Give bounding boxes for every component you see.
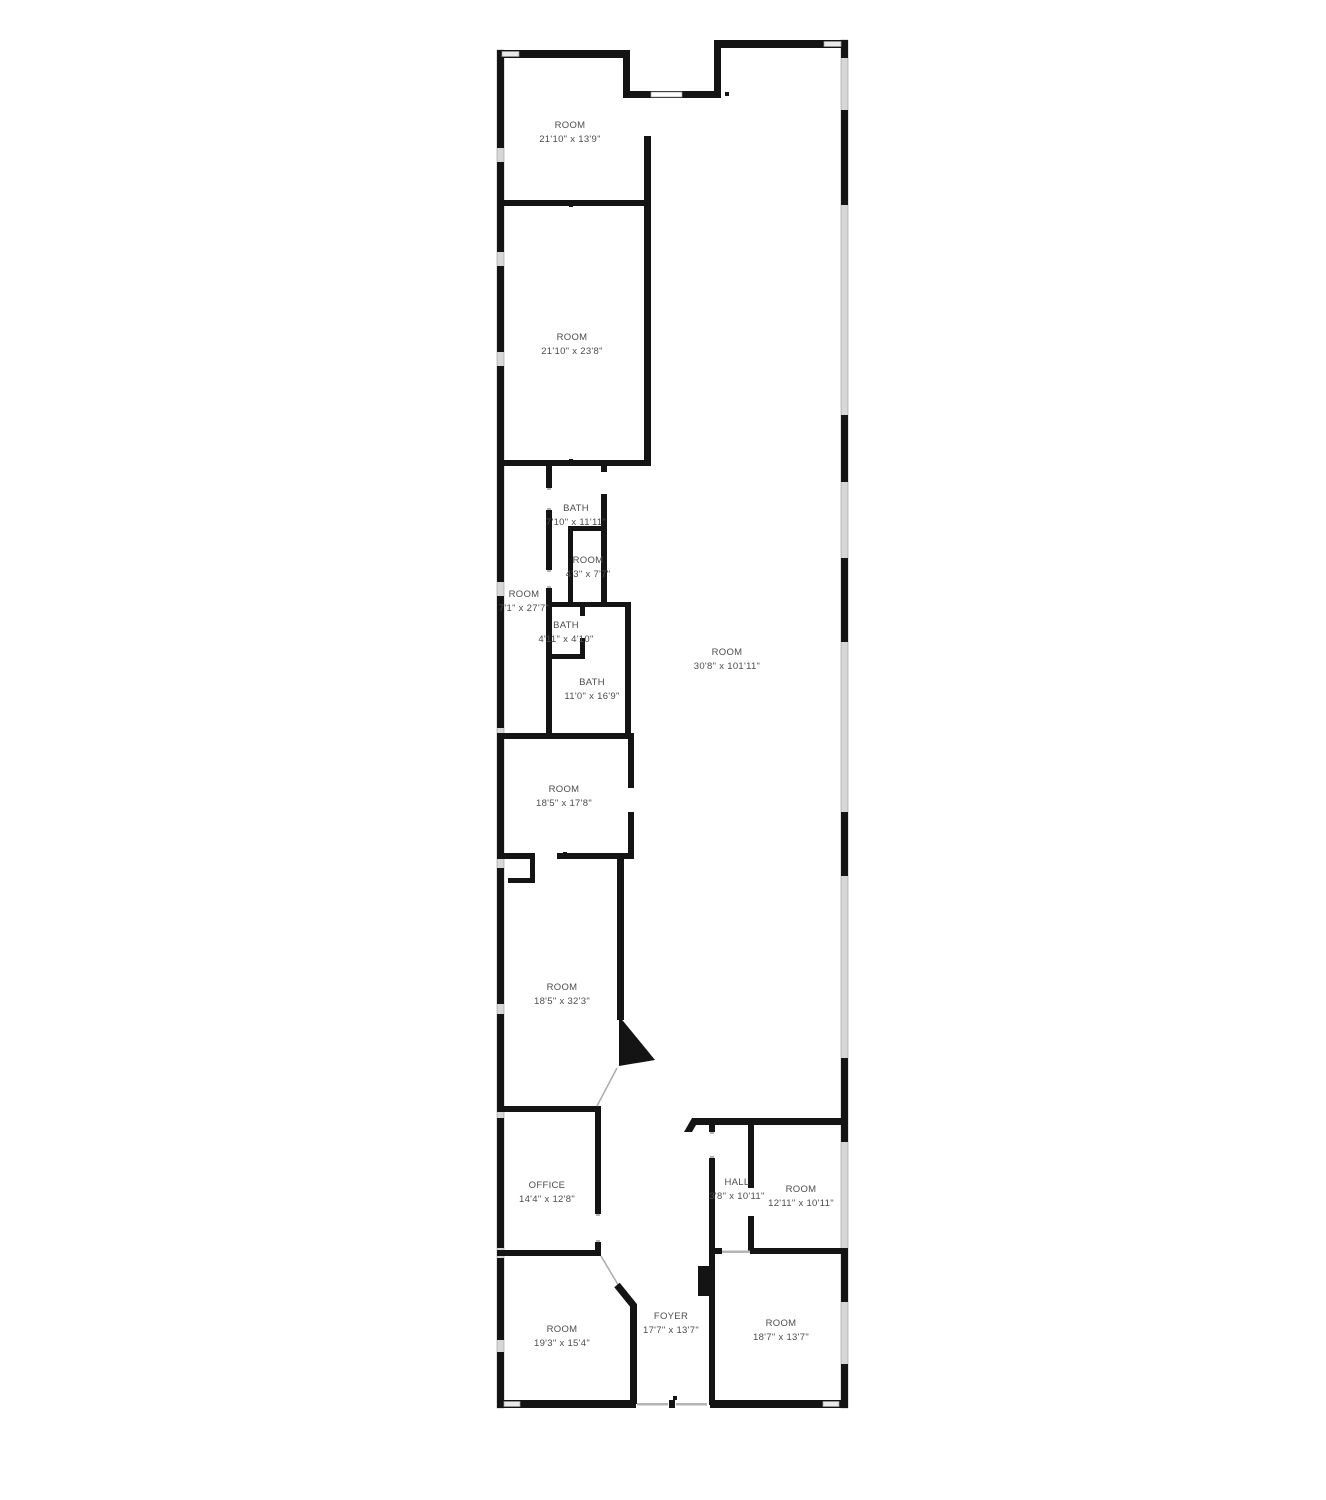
room-dims: 30'8" x 101'11": [694, 660, 760, 674]
room-name: BATH: [563, 503, 589, 514]
room-name: ROOM: [547, 1324, 578, 1335]
room-label-room-side-strip: ROOM7'1" x 27'7": [499, 588, 549, 616]
room-dims: 14'4" x 12'8": [519, 1193, 575, 1207]
room-dims: 19'3" x 15'4": [534, 1337, 590, 1351]
room-label-room-bottom-right: ROOM18'7" x 13'7": [753, 1317, 809, 1345]
room-label-room-right-mid: ROOM12'11" x 10'11": [768, 1183, 834, 1211]
room-dims: 4'11" x 4'10": [538, 633, 593, 647]
room-name: ROOM: [712, 647, 743, 658]
room-label-room-bottom-left: ROOM19'3" x 15'4": [534, 1323, 590, 1351]
room-dims: 21'10" x 23'8": [541, 345, 603, 359]
room-dims: 17'7" x 13'7": [643, 1324, 699, 1338]
room-name: ROOM: [557, 332, 588, 343]
room-dims: 21'10" x 13'9": [539, 133, 601, 147]
room-label-bath-small: BATH4'11" x 4'10": [538, 619, 593, 647]
room-name: ROOM: [549, 784, 580, 795]
labels-layer: ROOM21'10" x 13'9"ROOM21'10" x 23'8"ROOM…: [0, 0, 1326, 1500]
room-name: HALL: [725, 1177, 750, 1188]
room-label-bath-large: BATH11'0" x 16'9": [564, 676, 619, 704]
room-dims: 3'8" x 10'11": [709, 1190, 764, 1204]
room-name: ROOM: [766, 1318, 797, 1329]
room-label-office: OFFICE14'4" x 12'8": [519, 1179, 575, 1207]
room-name: ROOM: [786, 1184, 817, 1195]
room-label-room-small: ROOM4'3" x 7'7": [566, 554, 611, 582]
room-name: BATH: [553, 620, 579, 631]
room-label-room-top: ROOM21'10" x 13'9": [539, 119, 601, 147]
room-label-bath-main: BATH7'10" x 11'11": [546, 502, 606, 530]
room-label-room-mid-lower: ROOM18'5" x 32'3": [534, 981, 590, 1009]
room-dims: 7'10" x 11'11": [546, 516, 606, 530]
room-dims: 4'3" x 7'7": [566, 568, 611, 582]
room-name: BATH: [579, 677, 605, 688]
room-label-foyer: FOYER17'7" x 13'7": [643, 1310, 699, 1338]
room-label-hall: HALL3'8" x 10'11": [709, 1176, 764, 1204]
room-name: ROOM: [555, 120, 586, 131]
room-name: OFFICE: [529, 1180, 566, 1191]
floor-plan-canvas: ROOM21'10" x 13'9"ROOM21'10" x 23'8"ROOM…: [0, 0, 1326, 1500]
room-name: ROOM: [573, 555, 604, 566]
room-name: FOYER: [654, 1311, 688, 1322]
room-label-room-mid-upper: ROOM18'5" x 17'8": [536, 783, 592, 811]
room-name: ROOM: [547, 982, 578, 993]
room-dims: 18'5" x 32'3": [534, 995, 590, 1009]
room-label-room-main: ROOM30'8" x 101'11": [694, 646, 760, 674]
room-name: ROOM: [509, 589, 540, 600]
room-label-room-2: ROOM21'10" x 23'8": [541, 331, 603, 359]
room-dims: 7'1" x 27'7": [499, 602, 549, 616]
room-dims: 18'7" x 13'7": [753, 1331, 809, 1345]
room-dims: 12'11" x 10'11": [768, 1197, 834, 1211]
room-dims: 18'5" x 17'8": [536, 797, 592, 811]
room-dims: 11'0" x 16'9": [564, 690, 619, 704]
